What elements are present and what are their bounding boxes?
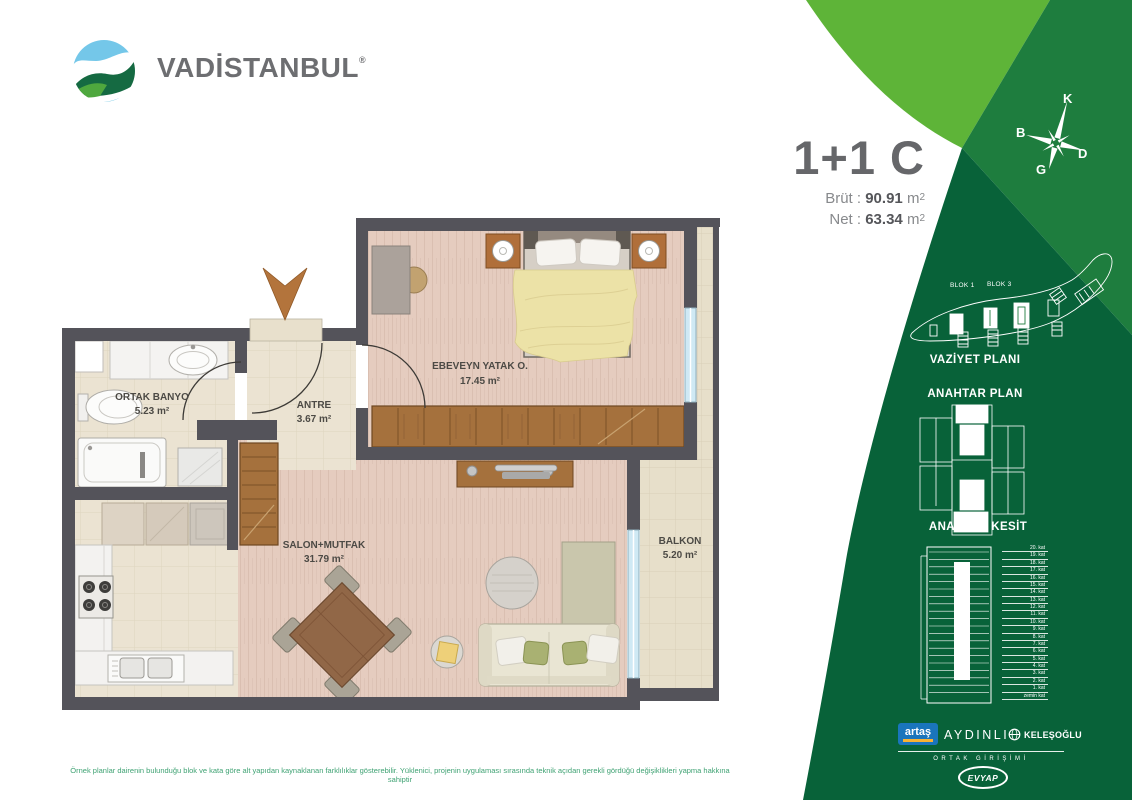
globe-icon — [1008, 728, 1021, 741]
bathroom-area: 5.23 m² — [135, 406, 170, 417]
tv-unit — [562, 542, 615, 628]
floor-row: 12. kat — [1002, 604, 1048, 611]
balcony-label: BALKON — [659, 536, 702, 547]
artas-underline — [903, 739, 933, 742]
floor-row: 16. kat — [1002, 575, 1048, 582]
gross-unit: m — [907, 190, 920, 207]
entry-wardrobe — [240, 443, 278, 545]
net-label: Net : — [829, 211, 861, 228]
balcony-area: 5.20 m² — [663, 550, 698, 561]
key-plan-title: ANAHTAR PLAN — [895, 388, 1055, 400]
bedroom-wardrobe — [372, 406, 684, 447]
blok1-label: BLOK 1 — [950, 282, 975, 289]
entrance-threshold — [250, 319, 322, 341]
blok3-label: BLOK 3 — [987, 281, 1012, 288]
disclaimer-text: Örnek planlar dairenin bulunduğu blok ve… — [62, 766, 738, 784]
floor-row: 9. kat — [1002, 626, 1048, 633]
floor-row: 20. kat — [1002, 545, 1048, 552]
gross-value: 90.91 — [865, 190, 903, 207]
floor-row: 17. kat — [1002, 567, 1048, 574]
sheet-graphic: EBEVEYN YATAK O. 17.45 m² ORTAK BANYO 5.… — [0, 0, 1132, 800]
sideboard — [457, 461, 573, 487]
floor-row: 7. kat — [1002, 641, 1048, 648]
bedroom-label: EBEVEYN YATAK O. — [432, 361, 528, 372]
brand-name: VADİSTANBUL — [157, 52, 359, 83]
bathtub — [78, 438, 166, 487]
evyap-logo: EVYAP — [958, 766, 1008, 789]
floor-row: 10. kat — [1002, 619, 1048, 626]
compass-west: B — [1016, 125, 1025, 140]
net-unit: m — [907, 211, 920, 228]
bed — [513, 231, 637, 362]
floorplan-sheet: { "brand": { "name": "VADİSTANBUL", "reg… — [0, 0, 1132, 800]
bedroom-window — [685, 308, 696, 402]
entry-label: ANTRE — [297, 400, 332, 411]
compass-north: K — [1063, 91, 1072, 106]
balcony-window — [628, 530, 639, 678]
net-area-line: Net : 63.34 m2 — [735, 211, 925, 228]
unit-info: 1+1 C Brüt : 90.91 m2 Net : 63.34 m2 — [735, 134, 925, 228]
artas-logo: artaş — [898, 723, 938, 745]
gross-unit-exp: 2 — [919, 192, 925, 203]
bathroom-label: ORTAK BANYO — [115, 392, 189, 403]
vanity — [110, 341, 228, 379]
kelesoglu-label: KELEŞOĞLU — [1024, 730, 1082, 740]
entry-area: 3.67 m² — [297, 414, 332, 425]
floor-row: 11. kat — [1002, 611, 1048, 618]
shower-unit — [178, 448, 222, 486]
partners-divider — [898, 751, 1064, 752]
floorplan: EBEVEYN YATAK O. 17.45 m² ORTAK BANYO 5.… — [62, 218, 720, 710]
floor-row: 8. kat — [1002, 634, 1048, 641]
coffee-table — [486, 557, 538, 609]
key-section-title: ANAHTAR KESİT — [898, 521, 1058, 533]
brand-logo-icon — [73, 40, 135, 105]
kelesoglu-logo: KELEŞOĞLU — [1008, 728, 1082, 741]
site-plan-title: VAZİYET PLANI — [895, 354, 1055, 366]
balcony-strip-floor — [697, 227, 713, 460]
floor-row: 14. kat — [1002, 589, 1048, 596]
gross-label: Brüt : — [825, 190, 861, 207]
joint-venture-label: ORTAK GİRİŞİMİ — [898, 756, 1064, 762]
floor-row: 1. kat — [1002, 685, 1048, 692]
net-unit-exp: 2 — [919, 213, 925, 224]
floor-row: 19. kat — [1002, 552, 1048, 559]
side-table — [431, 636, 463, 668]
floor-row: 5. kat — [1002, 656, 1048, 663]
balcony-floor — [640, 460, 713, 688]
net-value: 63.34 — [865, 211, 903, 228]
floor-row: zemin kat — [1002, 693, 1048, 700]
floor-row: 15. kat — [1002, 582, 1048, 589]
registered-mark: ® — [359, 55, 366, 65]
nightstand-left — [486, 234, 520, 268]
compass-south: G — [1036, 162, 1046, 177]
unit-type-title: 1+1 C — [735, 134, 925, 181]
floor-row: 18. kat — [1002, 560, 1048, 567]
salon-label: SALON+MUTFAK — [283, 540, 366, 551]
brand-wordmark: VADİSTANBUL® — [157, 52, 366, 84]
floor-row: 4. kat — [1002, 663, 1048, 670]
floor-list: 20. kat 19. kat 18. kat 17. kat 16. kat … — [1002, 545, 1048, 700]
floor-row: 13. kat — [1002, 597, 1048, 604]
floor-row: 3. kat — [1002, 670, 1048, 677]
kitchen-sink — [108, 655, 184, 682]
aydinli-logo: AYDINLI — [944, 728, 1009, 742]
nightstand-right — [632, 234, 666, 268]
gross-area-line: Brüt : 90.91 m2 — [735, 190, 925, 207]
entrance-arrow-icon — [263, 268, 307, 320]
sofa — [479, 624, 620, 686]
bedroom-area: 17.45 m² — [460, 376, 501, 387]
compass-east: D — [1078, 146, 1087, 161]
floor-row: 2. kat — [1002, 678, 1048, 685]
artas-label: artaş — [905, 727, 931, 738]
salon-area: 31.79 m² — [304, 554, 345, 565]
floor-row: 6. kat — [1002, 648, 1048, 655]
